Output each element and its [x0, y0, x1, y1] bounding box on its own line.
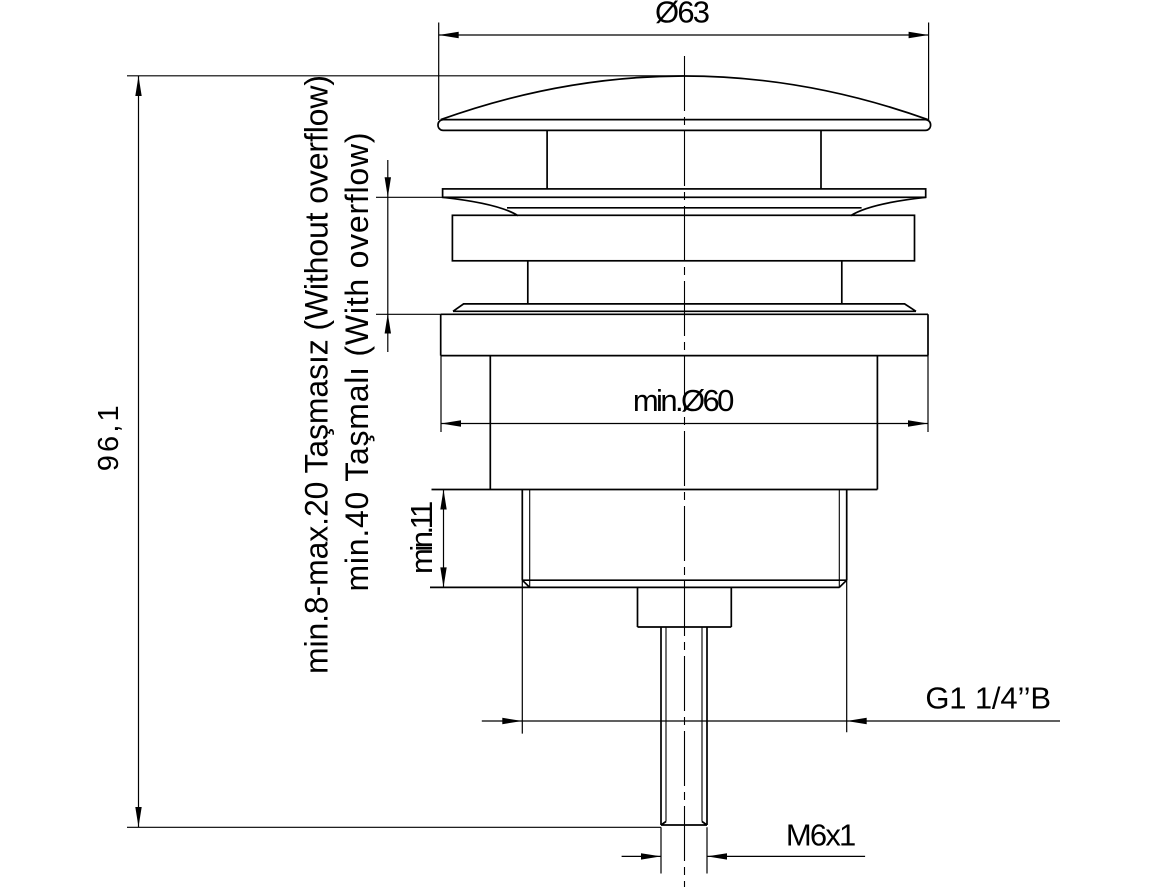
- svg-text:M6x1: M6x1: [786, 818, 856, 853]
- svg-text:min.Ø60: min.Ø60: [633, 383, 735, 418]
- svg-text:G1 1/4’’B: G1 1/4’’B: [925, 681, 1051, 716]
- svg-text:min.40 Taşmalı (With overflo: min.40 Taşmalı (With overflow): [339, 133, 375, 592]
- svg-text:Ø63: Ø63: [655, 0, 710, 30]
- svg-text:96,1: 96,1: [93, 405, 125, 471]
- svg-text:min.11: min.11: [404, 501, 439, 574]
- svg-text:min.8-max.20 Taşmasız (Witho: min.8-max.20 Taşmasız (Without overflow): [299, 75, 335, 674]
